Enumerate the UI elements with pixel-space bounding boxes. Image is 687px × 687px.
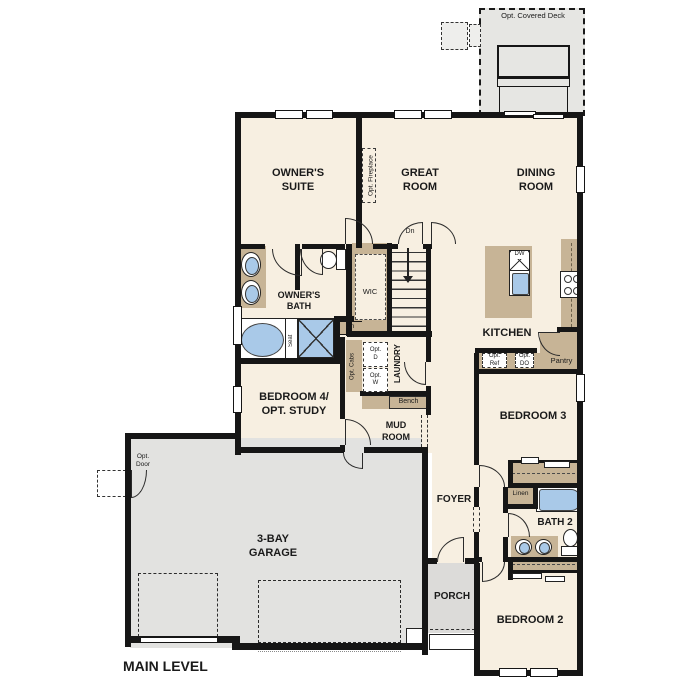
sliding-door-panel [533, 114, 564, 119]
porch-step-line [430, 629, 475, 630]
wall [125, 433, 240, 439]
opt-fireplace-label: Opt. Fireplace [365, 146, 377, 206]
garage-label: 3-BAY GARAGE [238, 531, 308, 562]
window [306, 110, 333, 119]
wall [423, 558, 437, 564]
window [424, 110, 452, 119]
wall [235, 358, 345, 364]
wall [475, 369, 583, 374]
bedroom3-label: BEDROOM 3 [490, 410, 576, 424]
window [530, 668, 558, 677]
foyer-label: FOYER [430, 494, 478, 507]
sliding-door-panel [504, 111, 536, 116]
deck-label: Opt. Covered Deck [488, 10, 578, 22]
opt-door-stoop [97, 470, 126, 497]
floor-plan: Opt. Covered Deck OWNER'S SUITE GREAT RO… [0, 0, 687, 687]
kitchen-label: KITCHEN [476, 327, 538, 340]
window [275, 110, 303, 119]
wall [508, 504, 538, 509]
opt-ref-label: Opt. Ref [482, 353, 507, 368]
deck-structure [497, 45, 570, 78]
wall [373, 244, 398, 249]
deck-steps [469, 24, 481, 47]
opening-mud-foyer [421, 415, 428, 447]
wall [533, 487, 538, 504]
opt-cabs-label: Opt. Cabs [345, 340, 360, 392]
bedroom4-label: BEDROOM 4/ OPT. STUDY [240, 390, 348, 420]
dining-room-label: DINING ROOM [498, 166, 574, 196]
closet-slider-panel [544, 461, 570, 468]
mud-room-label: MUD ROOM [370, 419, 422, 444]
toilet-bowl [563, 529, 578, 547]
wall [505, 557, 583, 562]
shower [297, 318, 335, 359]
toilet-tank [336, 249, 346, 270]
window [576, 374, 585, 402]
porch-label: PORCH [428, 591, 476, 604]
wall [238, 447, 344, 453]
window [576, 166, 585, 193]
bath2-label: BATH 2 [532, 517, 578, 530]
closet-rod [512, 473, 580, 474]
opt-door-label: Opt. Door [126, 452, 160, 470]
dn-label: Dn [400, 227, 420, 237]
garage-door-outline [138, 573, 218, 637]
closet-rod [512, 564, 580, 565]
wall [422, 448, 428, 655]
dw-label: DW [511, 251, 528, 259]
closet-slider-panel [545, 576, 565, 582]
opt-d-label: Opt. D [363, 343, 388, 366]
burner [564, 287, 572, 295]
wall [364, 447, 428, 453]
tub [241, 323, 284, 357]
window [394, 110, 422, 119]
opt-do-label: Opt. DO [515, 353, 534, 368]
sink-bowl [245, 257, 259, 275]
wall [508, 483, 583, 488]
plan-title: MAIN LEVEL [123, 658, 253, 676]
sink-bowl [519, 542, 530, 554]
wall [474, 563, 480, 676]
porch-step [429, 634, 476, 650]
stair-arrow [407, 248, 409, 278]
wall [426, 244, 431, 362]
garage-door-outline [258, 580, 401, 643]
wall [235, 244, 265, 249]
owners-suite-label: OWNER'S SUITE [243, 166, 353, 196]
stair-arrow-head [403, 276, 413, 283]
driveway-line [258, 651, 401, 652]
laundry-label: LAUNDRY [389, 336, 406, 391]
staircase [392, 244, 426, 337]
window [233, 306, 242, 345]
opening-foyer-hall [473, 507, 480, 532]
wall [340, 445, 345, 452]
closet-slider-panel [512, 573, 542, 579]
wall [557, 327, 583, 332]
burner [564, 275, 572, 283]
floor-foyer [432, 332, 478, 563]
sink-bowl [245, 285, 259, 303]
window [499, 668, 527, 677]
closet-slider-panel [521, 457, 539, 464]
garage-step [141, 637, 217, 643]
seat-label: Seat [284, 328, 298, 354]
wall [474, 557, 482, 562]
kitchen-sink-bowl [512, 273, 529, 295]
wall [232, 643, 428, 650]
deck-steps [441, 22, 468, 50]
wall [338, 316, 354, 321]
wall [474, 353, 479, 465]
bedroom2-label: BEDROOM 2 [486, 613, 574, 628]
tub2 [539, 489, 581, 511]
opt-w-label: Opt. W [363, 369, 388, 391]
sink-bowl [539, 542, 550, 554]
lin-label: Lin [338, 322, 362, 333]
owners-bath-label: OWNER'S BATH [266, 288, 332, 314]
great-room-label: GREAT ROOM [382, 166, 458, 196]
linen-label: Linen [508, 489, 533, 500]
wic-label: WIC [352, 287, 388, 297]
pantry-label: Pantry [540, 355, 583, 367]
bench-label: Bench [389, 397, 428, 408]
